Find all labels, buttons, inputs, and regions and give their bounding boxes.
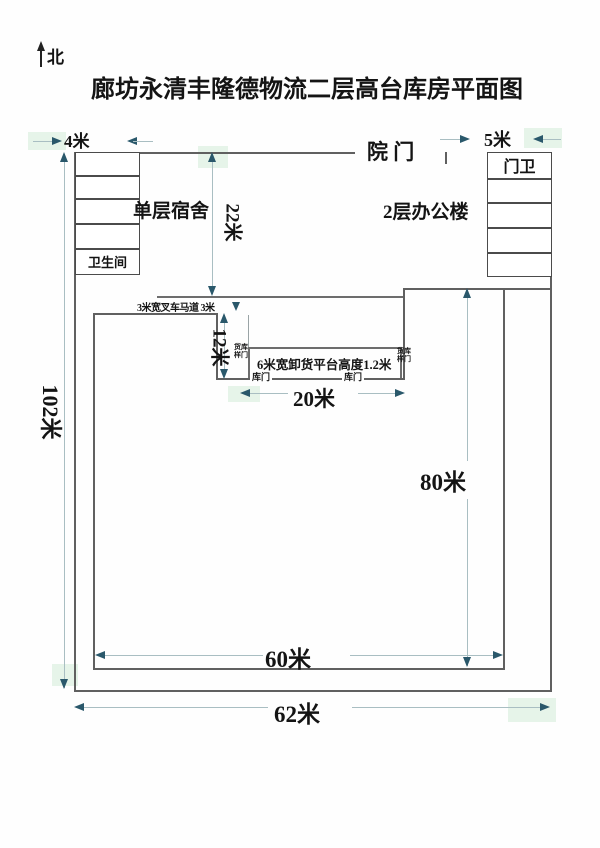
platform-top-line	[248, 347, 401, 349]
warehouse-wall-right	[503, 288, 505, 670]
page-title: 廊坊永清丰隆德物流二层高台库房平面图	[0, 69, 600, 104]
dim-warehouse-height-arrow	[463, 288, 471, 298]
boundary-bottom	[74, 690, 552, 692]
dim-office-width-arrow	[460, 135, 470, 143]
office-room-divider	[488, 252, 551, 254]
dorm-label: 单层宿舍	[133, 196, 209, 223]
warehouse-wall-top-right	[403, 288, 552, 290]
dim-platform-span-label: 20米	[293, 383, 335, 413]
dim-warehouse-height-arrow	[463, 657, 471, 667]
gate-post	[445, 152, 447, 164]
dim-dorm-width-line	[133, 141, 153, 142]
dim-warehouse-width-arrow	[95, 651, 105, 659]
dim-office-width-line	[543, 139, 561, 140]
ramp-line	[157, 296, 403, 298]
dim-site-width-arrow	[74, 703, 84, 711]
dorm-room-divider	[76, 175, 139, 177]
dim-platform-span-line	[358, 393, 395, 394]
dim-yard-depth-line	[212, 154, 213, 294]
dim-dorm-width-label: 4米	[64, 127, 90, 152]
toilet-label: 卫生间	[76, 250, 139, 273]
dim-site-width-line	[352, 707, 540, 708]
warehouse-wall-left	[93, 313, 95, 670]
dorm-room-divider	[76, 198, 139, 200]
dim-yard-depth-label: 22米	[221, 197, 248, 249]
notch-floor	[216, 378, 405, 380]
side-door-text: 样门	[234, 352, 248, 360]
office-room-divider	[488, 227, 551, 229]
dim-warehouse-width-line	[350, 655, 493, 656]
dim-platform-span-arrow	[240, 389, 250, 397]
dim-warehouse-height-label: 80米	[417, 461, 469, 499]
north-label: 北	[47, 43, 64, 68]
guard-room-label: 门卫	[488, 153, 551, 177]
tint-patch	[524, 128, 562, 148]
dim-dorm-width-arrow	[52, 137, 62, 145]
dim-yard-depth-arrow	[208, 286, 216, 296]
dim-platform-span-line	[250, 393, 288, 394]
dim-notch-depth-label: 12米	[208, 322, 235, 374]
dim-office-width-line	[440, 139, 460, 140]
dim-office-width-arrow	[533, 135, 543, 143]
dim-warehouse-width-arrow	[493, 651, 503, 659]
ramp-arrow	[232, 302, 240, 311]
floor-plan: 北 廊坊永清丰隆德物流二层高台库房平面图 院 门 卫生间 单层宿舍 门卫 2层办…	[0, 0, 600, 848]
ramp-label: 3米宽叉车马道 3米	[137, 299, 215, 314]
dim-site-width-line	[84, 707, 268, 708]
platform-label: 6米宽卸货平台高度1.2米	[257, 354, 391, 373]
north-arrow-head	[37, 41, 45, 51]
dim-site-height-arrow	[60, 152, 68, 162]
dim-warehouse-width-line	[105, 655, 263, 656]
dorm-room-divider	[76, 223, 139, 225]
yard-gate-label: 院 门	[367, 136, 414, 166]
side-door-text: 样门	[397, 356, 411, 364]
dim-site-height-arrow	[60, 679, 68, 689]
dim-office-width-label: 5米	[484, 126, 511, 152]
dock-door-label: 库门	[250, 372, 272, 382]
platform-side-door-label: 货库 样门	[397, 348, 411, 363]
dim-site-width-label: 62米	[274, 695, 320, 729]
dock-door-label: 库门	[342, 372, 364, 382]
office-room-divider	[488, 178, 551, 180]
dim-platform-span-arrow	[395, 389, 405, 397]
dim-yard-depth-arrow	[208, 152, 216, 162]
notch-wall-right	[403, 288, 405, 380]
office-label: 2层办公楼	[383, 197, 469, 224]
dim-site-height-label: 102米	[36, 380, 68, 444]
platform-side-door-label: 货库 样门	[234, 344, 248, 359]
office-room-divider	[488, 202, 551, 204]
dim-site-width-arrow	[540, 703, 550, 711]
dim-warehouse-width-label: 60米	[265, 640, 311, 674]
platform-edge-hook	[248, 315, 249, 347]
